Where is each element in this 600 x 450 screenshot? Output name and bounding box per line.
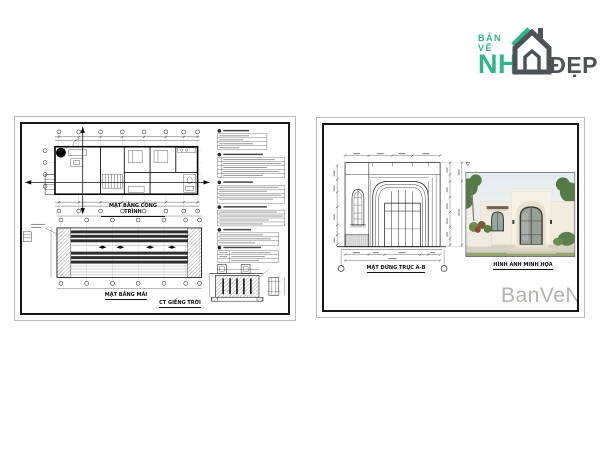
floor-plan-drawing	[25, 127, 209, 214]
floor-plan-caption: MẶT BẰNG CÔNG TRÌNH	[101, 204, 165, 217]
right-drawing-sheet[interactable]: MẶT ĐỨNG TRỤC A-B HÌNH ẢNH MINH HỌA BanV…	[316, 117, 585, 318]
left-drawing-sheet[interactable]: MẶT BẰNG CÔNG TRÌNH MẶT BẰNG MÁI CT GIẾN…	[14, 116, 296, 321]
skylight-detail-caption: CT GIẾNG TRỜI	[155, 301, 205, 308]
house-icon	[511, 24, 552, 76]
roof-plan-drawing	[23, 216, 201, 288]
skylight-detail-drawing	[209, 265, 284, 302]
specification-notes	[217, 129, 284, 262]
elevation-drawing	[334, 153, 470, 271]
watermark: BanVeNha	[501, 284, 577, 314]
elevation-caption: MẶT ĐỨNG TRỤC A-B	[353, 266, 439, 273]
roof-plan-caption: MẶT BẰNG MÁI	[95, 293, 157, 300]
site-logo[interactable]: BẢN VẼ NH ĐẸP	[478, 14, 598, 76]
plans-linework	[15, 117, 295, 320]
photo-caption: HÌNH ẢNH MINH HỌA	[487, 263, 559, 270]
logo-suffix-text: ĐẸP	[549, 55, 598, 76]
watermark-text: BanVeNha	[501, 284, 577, 307]
render-photo	[457, 172, 584, 256]
